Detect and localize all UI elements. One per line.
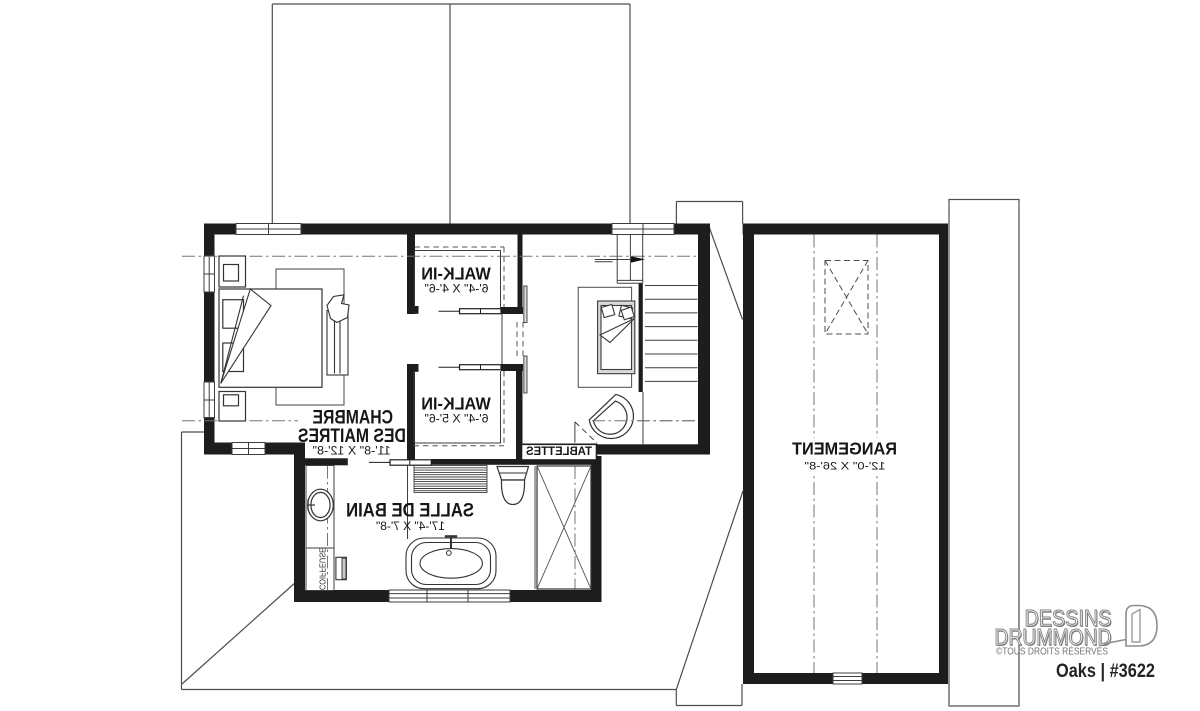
svg-text:WALK-IN: WALK-IN — [421, 264, 491, 284]
svg-text:RANGEMENT: RANGEMENT — [792, 439, 897, 459]
svg-text:©TOUS DROITS RÉSERVÉS: ©TOUS DROITS RÉSERVÉS — [996, 645, 1108, 658]
svg-text:6'-4" X 4'-6": 6'-4" X 4'-6" — [425, 284, 489, 296]
svg-text:Oaks | #3622: Oaks | #3622 — [1056, 661, 1155, 682]
svg-text:17'-4" X 7'-8": 17'-4" X 7'-8" — [376, 521, 445, 533]
svg-text:11'-8" X 12'-8": 11'-8" X 12'-8" — [313, 443, 391, 457]
svg-text:SALLE DE BAIN: SALLE DE BAIN — [346, 501, 474, 522]
svg-text:6'-4" X 5'-6": 6'-4" X 5'-6" — [425, 414, 489, 426]
svg-text:12'-0" X 26'-8": 12'-0" X 26'-8" — [804, 461, 885, 473]
svg-text:COIFFEUSE: COIFFEUSE — [318, 548, 328, 590]
svg-text:WALK-IN: WALK-IN — [421, 394, 491, 414]
svg-text:TABLETTES: TABLETTES — [526, 444, 592, 458]
